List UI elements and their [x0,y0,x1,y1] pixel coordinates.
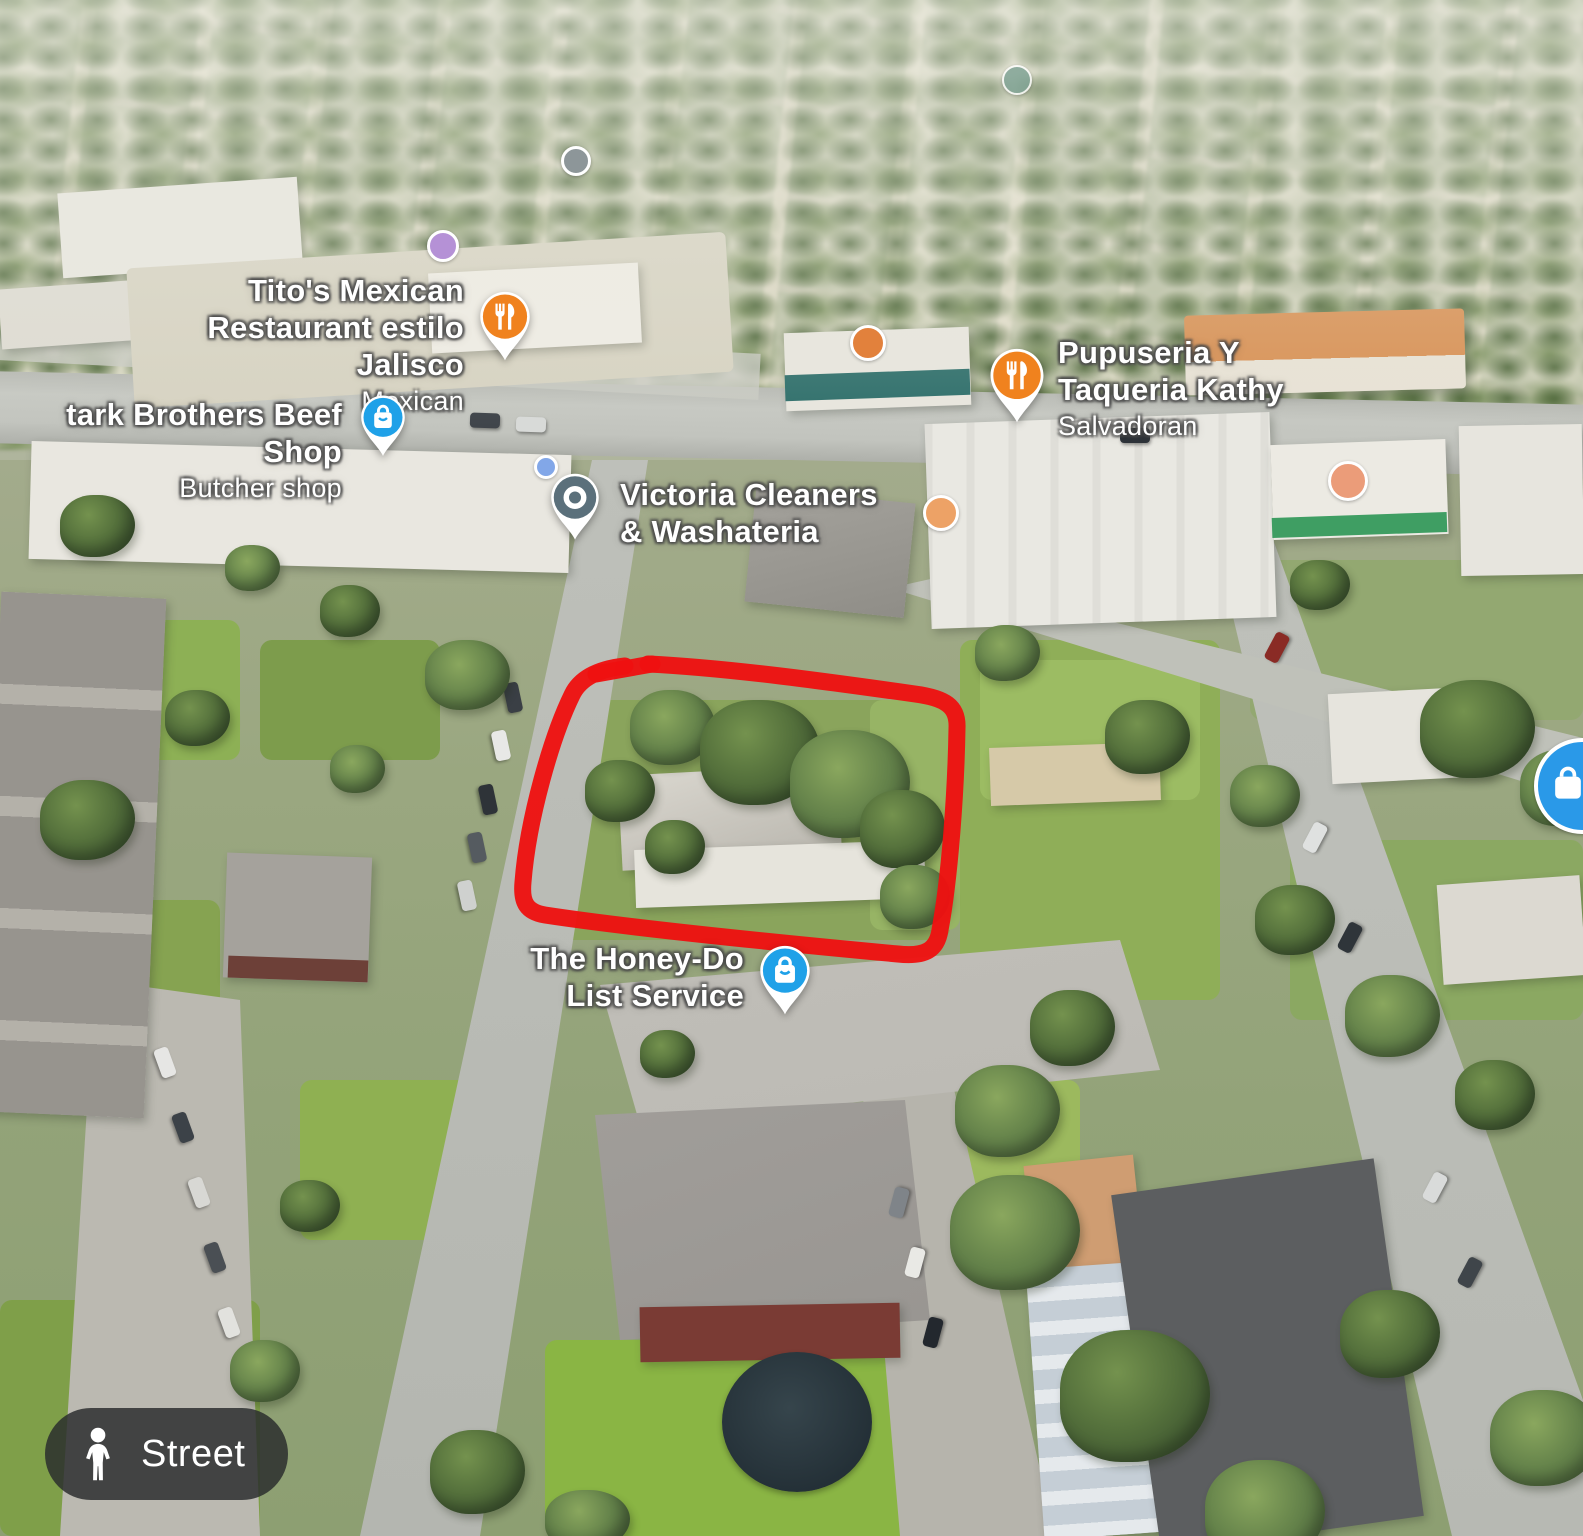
street-button-label: Street [141,1433,245,1476]
grass-patch [260,640,440,760]
poi-dot-marker[interactable] [923,495,959,531]
poi-dot-marker[interactable] [1328,461,1368,501]
place-name: Pupuseria Y [1058,334,1284,371]
poi-dot-marker[interactable] [561,146,591,176]
poi-dot-marker[interactable] [1002,65,1032,95]
place-label-pupuseria[interactable]: Pupuseria Y Taqueria Kathy Salvadoran [1058,334,1284,443]
tree [1490,1390,1583,1486]
place-category: Butcher shop [0,471,342,505]
shopping-pin-icon[interactable] [759,944,811,1018]
place-name: Restaurant estilo Jalisco [104,309,464,383]
poi-dot-marker[interactable] [427,230,459,262]
poi-dot-marker[interactable] [850,325,886,361]
place-category: Salvadoran [1058,409,1284,443]
shopping-pin-icon[interactable] [360,394,406,459]
map-canvas[interactable]: Tito's Mexican Restaurant estilo Jalisco… [0,0,1583,1536]
place-label-stark-brothers[interactable]: tark Brothers Beef Shop Butcher shop [0,396,342,505]
warehouse-roof [925,412,1277,629]
place-name: tark Brothers Beef Shop [0,396,342,470]
pegman-icon [77,1426,119,1482]
building-roof [1437,875,1583,985]
place-name: List Service [394,977,744,1014]
street-view-button[interactable]: Street [45,1408,288,1500]
pool [722,1352,872,1492]
shopping-bag-icon [1546,762,1583,806]
building-roof [1459,424,1583,576]
place-name: The Honey-Do [394,940,744,977]
place-name: Tito's Mexican [104,272,464,309]
place-label-honey-do[interactable]: The Honey-Do List Service [394,940,744,1014]
restaurant-pin-icon[interactable] [989,347,1045,426]
generic-place-pin-icon[interactable] [550,472,600,543]
house-wall [640,1303,901,1363]
place-name: Victoria Cleaners [620,476,878,513]
place-name: Taqueria Kathy [1058,371,1284,408]
place-name: & Washateria [620,513,878,550]
restaurant-pin-icon[interactable] [479,290,531,364]
place-label-victoria-cleaners[interactable]: Victoria Cleaners & Washateria [620,476,878,550]
